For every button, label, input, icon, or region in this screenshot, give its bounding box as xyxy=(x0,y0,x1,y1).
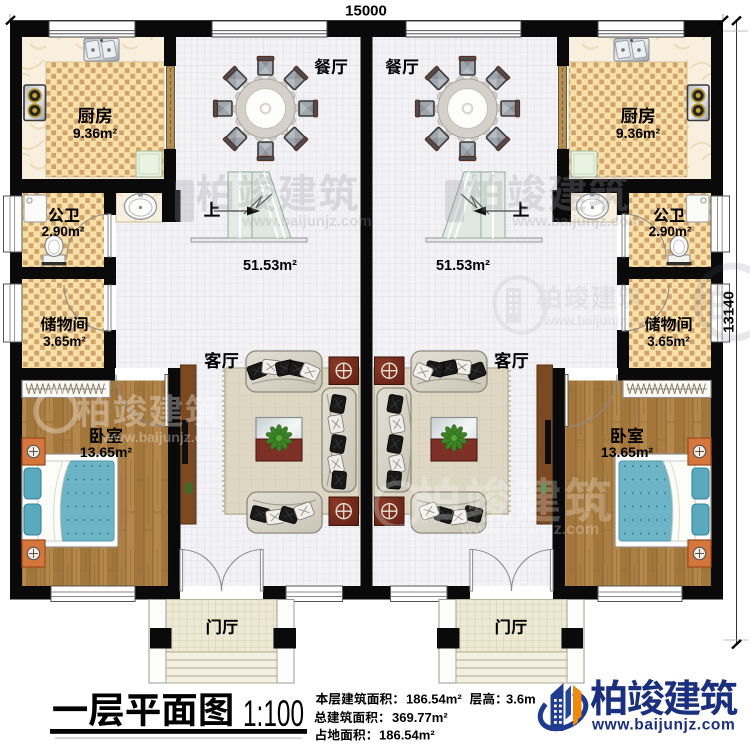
svg-text:9.36m²: 9.36m² xyxy=(616,125,661,141)
svg-text:13140: 13140 xyxy=(721,291,738,333)
svg-text:369.77m²: 369.77m² xyxy=(392,710,448,725)
svg-text:2.90m²: 2.90m² xyxy=(649,224,692,239)
svg-text:3.65m²: 3.65m² xyxy=(43,334,86,349)
svg-text:15000: 15000 xyxy=(345,3,387,20)
svg-text:51.53m²: 51.53m² xyxy=(436,258,490,274)
svg-text:www.baijunjz.com: www.baijunjz.com xyxy=(460,521,599,538)
svg-text:13.65m²: 13.65m² xyxy=(601,444,653,460)
svg-text:13.65m²: 13.65m² xyxy=(80,444,132,460)
svg-text:186.54m²: 186.54m² xyxy=(379,728,435,743)
svg-text:3.6m: 3.6m xyxy=(506,692,536,707)
svg-text:2.90m²: 2.90m² xyxy=(42,224,85,239)
svg-text:www.baijunjz.com: www.baijunjz.com xyxy=(102,429,224,445)
svg-text:www.baijunjz.com: www.baijunjz.com xyxy=(241,213,371,230)
svg-text:www.baijunjz.com: www.baijunjz.com xyxy=(543,313,656,328)
svg-text:www.baijunjz.com: www.baijunjz.com xyxy=(591,717,735,734)
svg-text:186.54m²: 186.54m² xyxy=(406,692,462,707)
svg-text:1:100: 1:100 xyxy=(243,693,304,734)
svg-text:51.53m²: 51.53m² xyxy=(243,258,297,274)
svg-text:3.65m²: 3.65m² xyxy=(647,334,690,349)
svg-text:9.36m²: 9.36m² xyxy=(73,125,118,141)
svg-text:www.baijunjz.com: www.baijunjz.com xyxy=(511,213,641,230)
